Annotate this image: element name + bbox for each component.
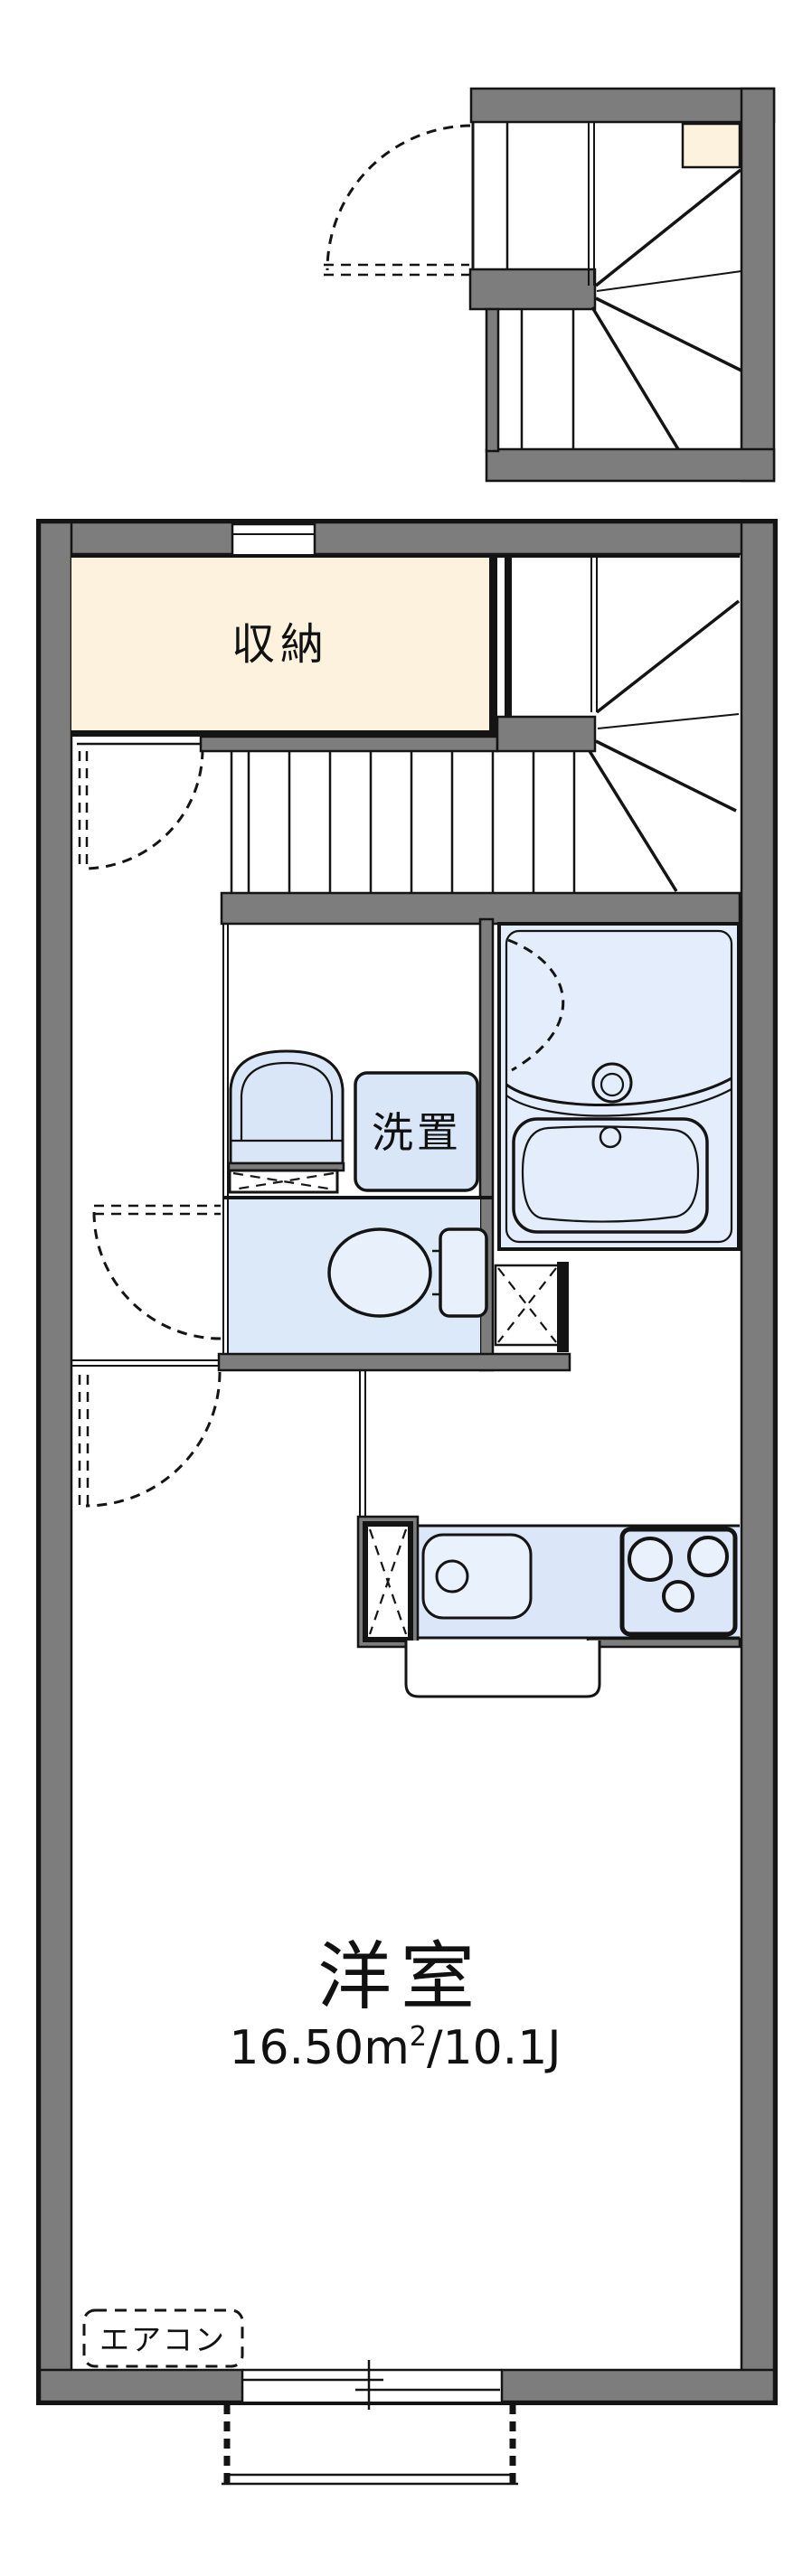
window-gap: [231, 524, 316, 554]
aircon-spot: エアコン: [84, 2310, 242, 2366]
stair-mid-wall-stub: [497, 717, 595, 751]
door-arc: [327, 126, 470, 270]
area-tatami: /10.1J: [427, 2021, 562, 2075]
area-value: 16.50m: [229, 2021, 410, 2075]
outer-outline: [38, 521, 776, 2403]
floor-plan-drawing: 収納: [0, 0, 812, 2576]
fan-line: [597, 601, 739, 712]
fan-line: [596, 298, 741, 371]
closet: 収納: [71, 554, 497, 869]
kitchen-sink-icon: [423, 1535, 531, 1618]
washer-pan: 洗置: [355, 1073, 477, 1190]
main-room-label: 洋室: [317, 1934, 484, 2020]
area-superscript: 2: [410, 2021, 427, 2053]
fan-line: [598, 714, 739, 729]
door-post: [557, 1262, 569, 1352]
left-wall: [40, 522, 71, 2402]
toilet-bowl: [329, 1229, 430, 1316]
washer-label: 洗置: [372, 1108, 462, 1157]
fan-line: [596, 170, 741, 286]
stove-burner: [629, 1538, 671, 1580]
closet-right-border: [489, 554, 497, 737]
fan-line: [590, 751, 676, 891]
upper-closet-box: [683, 124, 740, 167]
top-window-icon: [231, 522, 316, 554]
washbasin-icon: [229, 1051, 344, 1163]
toilet-door-arc-icon: [94, 1206, 221, 1339]
top-wall: [40, 522, 774, 554]
stove-burner: [689, 1537, 727, 1575]
porch: [222, 2404, 518, 2484]
hall-room-boundary: [71, 1360, 365, 1524]
fridge-space-icon: [358, 1517, 418, 1647]
door-arc: [83, 749, 203, 869]
under-closet-wall: [201, 737, 497, 751]
door-frame: [496, 1265, 559, 1345]
upper-door-arc-icon: [324, 126, 470, 275]
counter-low-wall: [588, 1639, 740, 1647]
aircon-label: エアコン: [99, 2322, 226, 2357]
floor-plan: 収納: [0, 0, 812, 2576]
main-room: 洋室 16.50m2/10.1J エアコン: [84, 1934, 562, 2366]
fan-line: [597, 271, 741, 291]
washroom-folding-door-icon: [229, 1163, 344, 1192]
door-frame: [230, 1170, 337, 1192]
bathroom: [496, 924, 739, 1352]
upper-right-wall: [741, 89, 774, 481]
door-arc: [86, 1372, 220, 1506]
upper-winder-fan: [592, 170, 741, 449]
sink-basin: [423, 1535, 531, 1618]
toilet-icon: [329, 1229, 486, 1316]
kitchen: [358, 1517, 740, 1697]
bottom-wall-right: [502, 2370, 774, 2402]
bath-entry-folding-door-icon: [496, 1262, 569, 1352]
upper-left-thin-wall: [486, 309, 498, 451]
right-wall: [741, 522, 774, 2402]
room-door-arc-icon: [80, 1372, 220, 1508]
closet-door-arc-icon: [80, 749, 203, 869]
stove-burner: [664, 1582, 693, 1611]
entrance: [222, 2360, 518, 2484]
stove-icon: [622, 1529, 735, 1634]
landing-left-border: [505, 556, 512, 717]
upper-stair-block: [324, 89, 774, 481]
bottom-wall-left: [40, 2370, 242, 2402]
fan-line: [596, 741, 736, 811]
closet-label: 収納: [231, 619, 329, 670]
counter-footprint: [406, 1641, 600, 1697]
bath-faucet-icon: [593, 1064, 631, 1102]
stair-treads: [231, 751, 574, 893]
toilet-bottom-wall: [219, 1354, 570, 1370]
door-arc: [94, 1212, 221, 1339]
main-room-area: 16.50m2/10.1J: [229, 2021, 561, 2075]
fan-line: [592, 307, 678, 449]
stair-winder-fan: [590, 601, 739, 891]
upper-top-wall: [471, 89, 774, 122]
unit-walls: [38, 521, 776, 2403]
basin-outer: [231, 1051, 343, 1163]
upper-mid-wall-stub: [470, 269, 595, 309]
upper-bottom-wall: [486, 449, 774, 481]
toilet-tank: [440, 1229, 486, 1316]
